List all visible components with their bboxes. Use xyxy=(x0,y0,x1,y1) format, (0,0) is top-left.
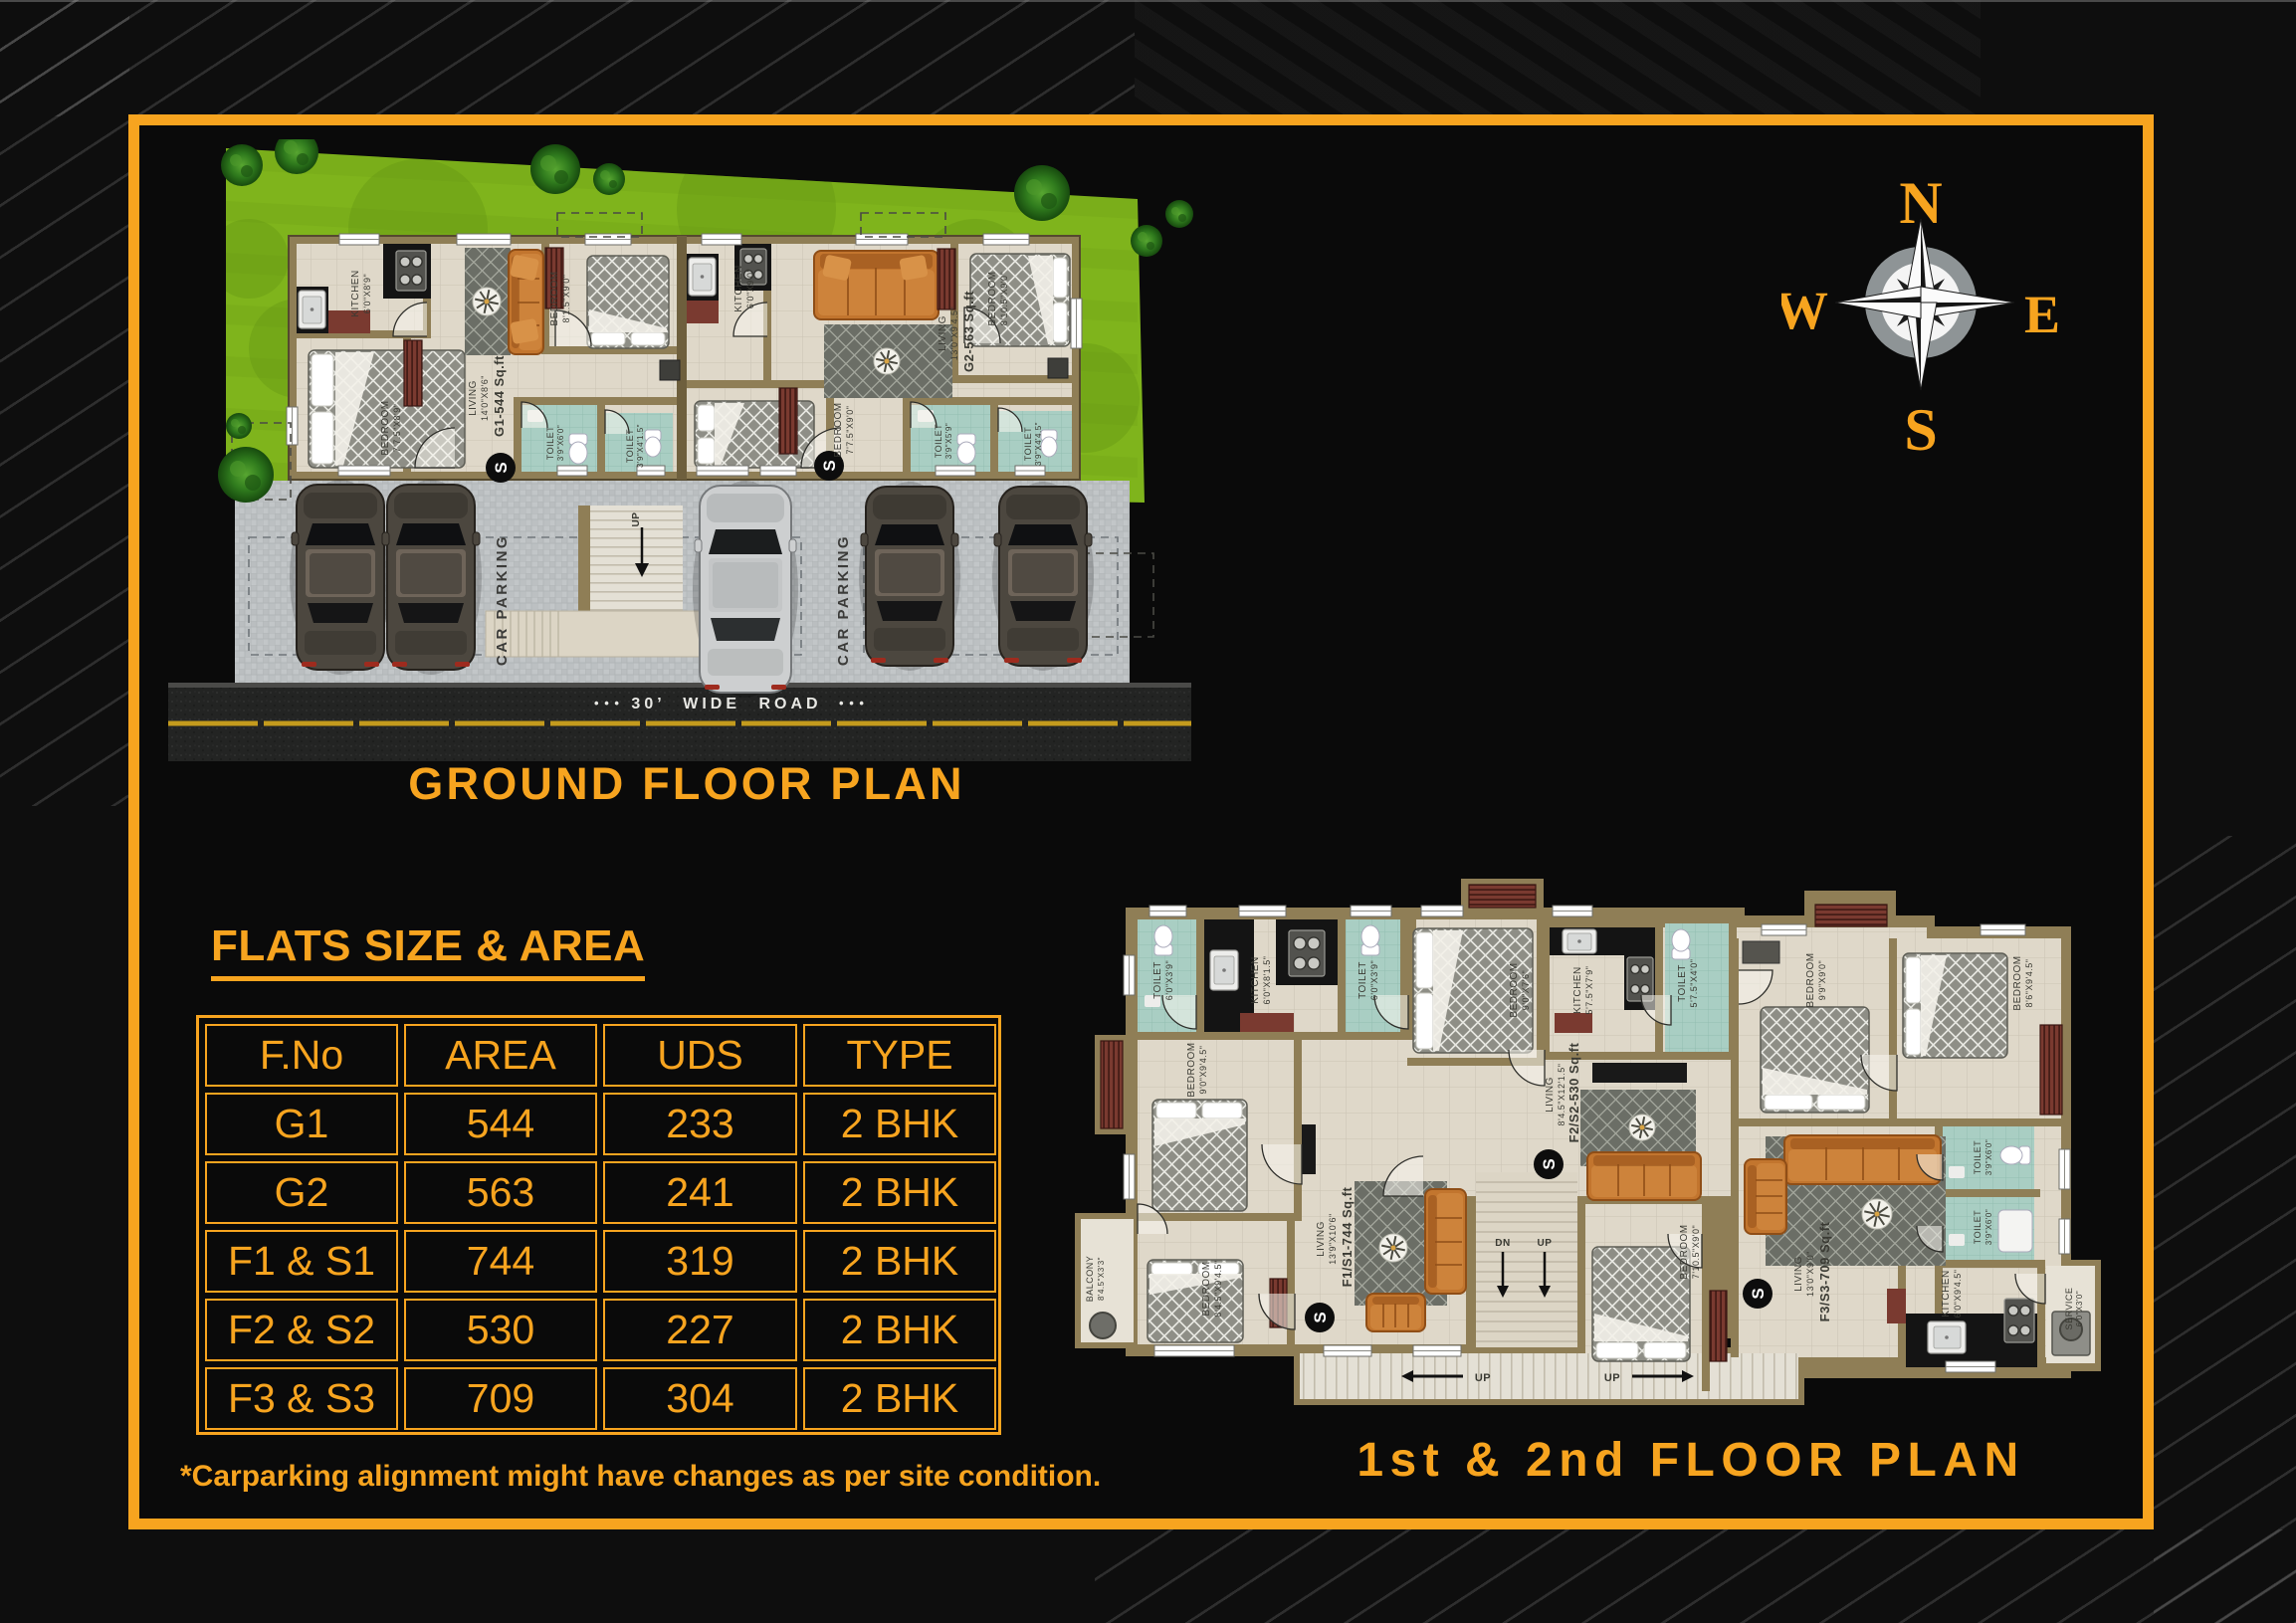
svg-text:3'9"X6'0": 3'9"X6'0" xyxy=(556,425,565,461)
svg-text:3'9"X4'1.5": 3'9"X4'1.5" xyxy=(636,424,645,468)
svg-text:• • •: • • • xyxy=(839,696,865,710)
svg-text:13'0"X9'4.5": 13'0"X9'4.5" xyxy=(949,306,959,360)
svg-text:TOILET: TOILET xyxy=(625,429,635,463)
svg-text:8'1.5"X9'0": 8'1.5"X9'0" xyxy=(561,275,571,323)
svg-text:13'9"X10'6": 13'9"X10'6" xyxy=(1328,1213,1338,1264)
svg-text:6'0"X8'1.5": 6'0"X8'1.5" xyxy=(1262,956,1272,1005)
svg-text:KITCHEN: KITCHEN xyxy=(1250,956,1261,1003)
svg-text:BEDROOM: BEDROOM xyxy=(1186,1042,1197,1097)
svg-text:UP: UP xyxy=(1475,1372,1491,1384)
svg-text:8'4.5"X9'4.5": 8'4.5"X9'4.5" xyxy=(1213,1260,1223,1317)
svg-text:F2/S2-530 Sq.ft: F2/S2-530 Sq.ft xyxy=(1566,1042,1581,1142)
svg-text:W: W xyxy=(1781,281,1828,340)
svg-text:BALCONY: BALCONY xyxy=(1085,1256,1095,1303)
svg-text:TOILET: TOILET xyxy=(934,424,943,458)
svg-text:BEDROOM: BEDROOM xyxy=(2012,955,2023,1010)
svg-text:3'9"X5'9": 3'9"X5'9" xyxy=(944,423,953,459)
svg-text:7'7.5"X8'9": 7'7.5"X8'9" xyxy=(392,404,402,453)
svg-text:8'4.5"X3'3": 8'4.5"X3'3" xyxy=(1097,1257,1106,1301)
svg-text:6'0"X8'9": 6'0"X8'9" xyxy=(362,274,372,313)
svg-text:LIVING: LIVING xyxy=(468,380,479,416)
svg-text:• • •: • • • xyxy=(594,696,620,710)
svg-text:UP: UP xyxy=(631,512,642,527)
svg-text:S: S xyxy=(1749,1288,1768,1299)
svg-text:TOILET: TOILET xyxy=(1973,1210,1983,1244)
svg-text:BEDROOM: BEDROOM xyxy=(833,402,844,457)
svg-text:TOILET: TOILET xyxy=(1677,964,1688,1002)
svg-text:S: S xyxy=(820,460,839,471)
svg-text:KITCHEN: KITCHEN xyxy=(1572,966,1583,1013)
svg-text:13'0"X9'0": 13'0"X9'0" xyxy=(1805,1251,1815,1297)
svg-text:CAR PARKING: CAR PARKING xyxy=(494,534,511,666)
svg-text:TOILET: TOILET xyxy=(1973,1140,1983,1174)
svg-text:8'6"X9'4.5": 8'6"X9'4.5" xyxy=(2024,959,2034,1008)
svg-text:UP: UP xyxy=(1538,1238,1553,1249)
svg-text:F1/S1-744 Sq.ft: F1/S1-744 Sq.ft xyxy=(1340,1186,1355,1287)
svg-text:UP: UP xyxy=(1604,1372,1620,1384)
svg-text:G2-563 Sq.ft: G2-563 Sq.ft xyxy=(961,291,976,372)
svg-text:8'4.5"X12'1.5": 8'4.5"X12'1.5" xyxy=(1557,1064,1566,1126)
svg-text:14'0"X8'6": 14'0"X8'6" xyxy=(480,375,490,421)
svg-text:G1-544 Sq.ft: G1-544 Sq.ft xyxy=(492,355,507,437)
svg-text:CAR PARKING: CAR PARKING xyxy=(835,534,852,666)
svg-text:7'7.5"X9'0": 7'7.5"X9'0" xyxy=(845,406,855,455)
svg-text:6'0"X3'9": 6'0"X3'9" xyxy=(1164,960,1174,1000)
svg-text:KITCHEN: KITCHEN xyxy=(350,270,361,316)
svg-text:S: S xyxy=(492,462,511,473)
svg-text:8'10.5"X9'0": 8'10.5"X9'0" xyxy=(999,272,1009,325)
svg-text:BEDROOM: BEDROOM xyxy=(1805,952,1816,1007)
svg-text:5'7.5"X4'0": 5'7.5"X4'0" xyxy=(1689,959,1699,1008)
svg-text:LIVING: LIVING xyxy=(1545,1077,1556,1113)
svg-text:6'0"X3'9": 6'0"X3'9" xyxy=(1369,960,1379,1000)
svg-text:BEDROOM: BEDROOM xyxy=(1201,1261,1212,1316)
svg-text:KITCHEN: KITCHEN xyxy=(733,265,744,311)
svg-text:5'7.5"X7'9": 5'7.5"X7'9" xyxy=(1584,966,1594,1015)
svg-text:S: S xyxy=(1904,397,1937,463)
svg-text:E: E xyxy=(2024,285,2060,344)
svg-text:30’ WIDE ROAD: 30’ WIDE ROAD xyxy=(631,696,821,712)
svg-text:F3/S3-709 Sq.ft: F3/S3-709 Sq.ft xyxy=(1817,1221,1832,1321)
svg-text:BEDROOM: BEDROOM xyxy=(1509,962,1520,1017)
svg-text:S: S xyxy=(1311,1312,1330,1322)
svg-text:BEDROOM: BEDROOM xyxy=(549,271,560,325)
svg-text:LIVING: LIVING xyxy=(938,315,948,351)
svg-text:LIVING: LIVING xyxy=(1316,1221,1327,1257)
svg-text:KITCHEN: KITCHEN xyxy=(1941,1270,1952,1317)
svg-text:DN: DN xyxy=(1495,1238,1510,1249)
svg-text:3'9"X4'4.5": 3'9"X4'4.5" xyxy=(1034,422,1043,466)
svg-text:3'9"X6'0": 3'9"X6'0" xyxy=(1984,1209,1993,1245)
svg-text:9'0"X9'4.5": 9'0"X9'4.5" xyxy=(1198,1046,1208,1095)
svg-text:TOILET: TOILET xyxy=(545,426,555,460)
svg-text:LIVING: LIVING xyxy=(1793,1256,1804,1292)
svg-text:6'0"X3'0": 6'0"X3'0" xyxy=(2075,1291,2084,1326)
svg-text:N: N xyxy=(1899,170,1942,236)
svg-text:S: S xyxy=(1540,1158,1559,1169)
svg-text:6'0"X9'0": 6'0"X9'0" xyxy=(745,269,755,308)
svg-text:9'0"X7'6": 9'0"X7'6" xyxy=(1521,970,1531,1010)
svg-text:BEDROOM: BEDROOM xyxy=(380,400,391,455)
svg-text:7'10.5"X9'0": 7'10.5"X9'0" xyxy=(1691,1225,1701,1279)
svg-text:SERVICE: SERVICE xyxy=(2064,1288,2074,1330)
svg-text:6'0"X9'4.5": 6'0"X9'4.5" xyxy=(1953,1270,1963,1319)
svg-text:BEDROOM: BEDROOM xyxy=(987,271,998,325)
svg-text:TOILET: TOILET xyxy=(1152,961,1163,999)
svg-text:BEDROOM: BEDROOM xyxy=(1679,1224,1690,1279)
svg-text:9'9"X9'0": 9'9"X9'0" xyxy=(1817,960,1827,1000)
svg-text:3'9"X6'0": 3'9"X6'0" xyxy=(1984,1139,1993,1175)
svg-text:TOILET: TOILET xyxy=(1357,961,1368,999)
svg-text:TOILET: TOILET xyxy=(1023,427,1033,461)
